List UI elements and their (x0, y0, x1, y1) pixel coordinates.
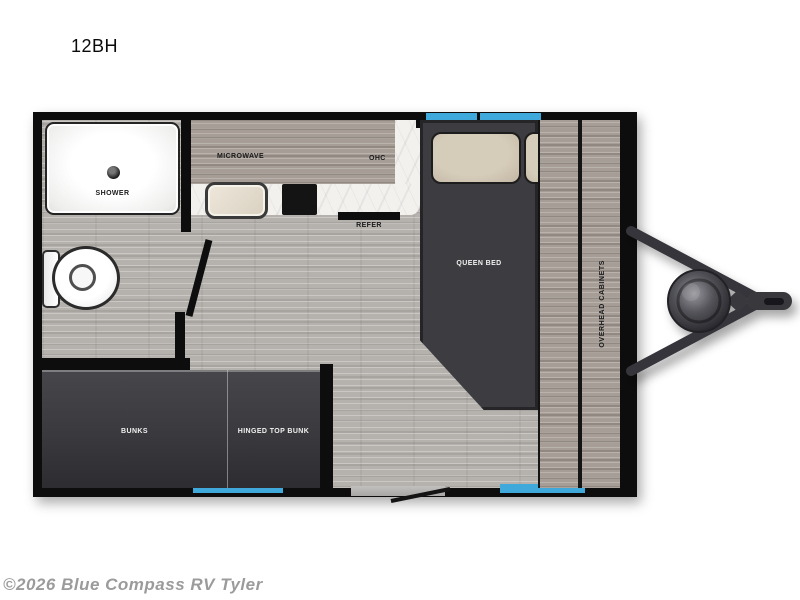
shower-label: SHOWER (47, 190, 178, 197)
shower-pan: SHOWER (45, 122, 180, 215)
entry-door (351, 486, 445, 496)
window (426, 113, 541, 121)
refer-label: REFER (338, 222, 400, 229)
bunks-label: BUNKS (42, 428, 227, 435)
refrigerator (338, 212, 400, 220)
overhead-cabinets-label: OVERHEAD CABINETS (599, 260, 606, 348)
hinged-top-bunk-label: HINGED TOP BUNK (227, 428, 320, 435)
window-divider (477, 113, 480, 121)
ohc-label: OHC (369, 155, 386, 162)
microwave-label: MICROWAVE (217, 153, 264, 160)
propane-tank (668, 270, 730, 332)
floorplan-image: 12BH SHOWER MICROWAVE OHC (0, 0, 800, 600)
tongue-jack (726, 290, 750, 312)
cooktop (282, 184, 317, 215)
wall (620, 120, 628, 488)
pillow (431, 132, 521, 184)
floorplan-title: 12BH (71, 36, 118, 57)
overhead-cabinets-column: OVERHEAD CABINETS (582, 120, 622, 488)
wall (181, 112, 191, 232)
bunks-area: BUNKS HINGED TOP BUNK (42, 370, 320, 488)
hitch-coupler (747, 292, 792, 310)
toilet-flush-icon (69, 264, 96, 291)
shower-drain-icon (107, 166, 120, 179)
overhead-cabinets-column (540, 120, 578, 488)
queen-bed-label: QUEEN BED (420, 260, 538, 267)
trailer-tongue (631, 231, 792, 371)
counter (395, 120, 420, 184)
kitchen-overhead-cabinet: MICROWAVE OHC (191, 120, 395, 189)
toilet (52, 246, 120, 310)
wall (320, 364, 333, 488)
sink (205, 182, 268, 219)
trailer-body: SHOWER MICROWAVE OHC REFER (33, 112, 637, 497)
watermark: ©2026 Blue Compass RV Tyler (3, 575, 263, 595)
